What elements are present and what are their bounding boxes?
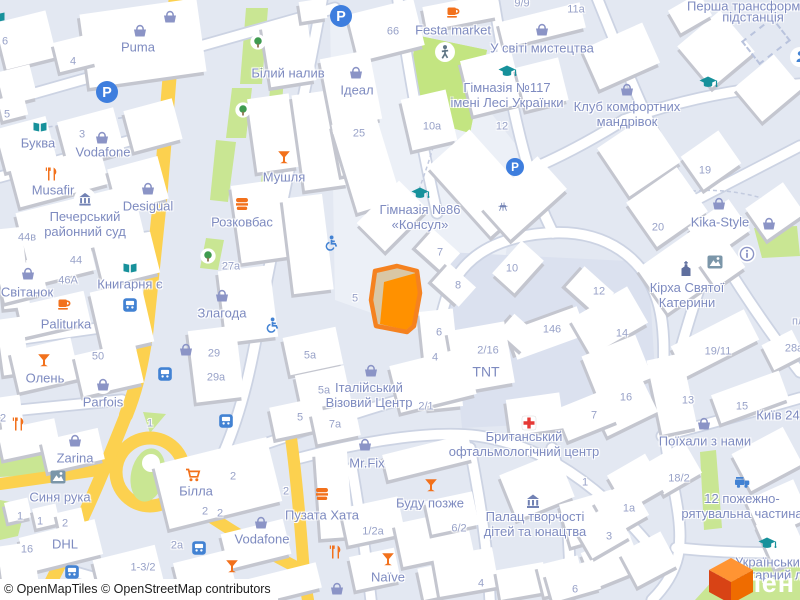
housenumber-label: 5а: [318, 384, 330, 399]
housenumber-label: пл: [792, 315, 800, 330]
fastfood-icon[interactable]: [312, 484, 332, 504]
poi-label: Синя рука: [29, 490, 90, 505]
poi-label: DHL: [52, 537, 78, 552]
housenumber-label: 2: [283, 485, 289, 500]
basket-icon[interactable]: [355, 435, 375, 455]
tree-icon: [235, 102, 252, 119]
parking-icon[interactable]: P: [330, 5, 352, 27]
housenumber-label: 16: [21, 543, 33, 558]
artwork-icon[interactable]: [705, 252, 725, 272]
poi-label: підстанція: [722, 10, 784, 25]
housenumber-label: 1/2a: [362, 525, 383, 540]
housenumber-label: 3: [79, 128, 85, 143]
poi-label: У світі мистецтва: [490, 41, 594, 56]
basket-icon[interactable]: [617, 80, 637, 100]
housenumber-label: 5: [4, 108, 10, 123]
poi-label: Kika-Style: [691, 215, 750, 230]
maptiler-logo-icon[interactable]: [706, 556, 756, 600]
cocktail-icon[interactable]: [274, 147, 294, 167]
housenumber-label: 1a: [623, 502, 635, 517]
fire-icon[interactable]: [732, 471, 752, 491]
attribution-bar[interactable]: © OpenMapTiles © OpenStreetMap contribut…: [0, 579, 278, 600]
poi-label: Розковбас: [211, 215, 273, 230]
poi-label: Ідеал: [340, 83, 373, 98]
basket-icon[interactable]: [212, 286, 232, 306]
poi-label: Злагода: [198, 306, 247, 321]
housenumber-label: 6/2: [451, 522, 466, 537]
housenumber-label: 16: [620, 391, 632, 406]
bank-icon[interactable]: [74, 188, 96, 210]
housenumber-label: 10a: [423, 120, 441, 135]
housenumber-label: 12: [593, 285, 605, 300]
basket-icon[interactable]: [93, 375, 113, 395]
housenumber-label: 2: [0, 412, 6, 427]
basket-icon[interactable]: [361, 361, 381, 381]
poi-label: Vodafone: [235, 532, 290, 547]
cocktail-icon[interactable]: [378, 549, 398, 569]
housenumber-label: 25: [353, 127, 365, 142]
housenumber-label: 6: [572, 583, 578, 598]
poi-label: Mr.Fix: [349, 456, 384, 471]
poi-label: Гімназія №117імені Лесі Українки: [450, 80, 563, 110]
poi-label: Білла: [179, 484, 213, 499]
poi-label: Кірха СвятоїКатерини: [650, 280, 725, 310]
poi-label: Палац творчостідітей та юнацтва: [484, 509, 587, 539]
cup-icon[interactable]: [54, 293, 74, 313]
housenumber-label: 2/16: [477, 344, 498, 359]
museum-icon[interactable]: [523, 491, 543, 511]
tree-icon: [250, 34, 267, 51]
housenumber-label: 7: [591, 409, 597, 424]
fastfood-icon[interactable]: [232, 194, 252, 214]
housenumber-label: 2/1: [418, 400, 433, 415]
poi-label: Поїхали з нами: [659, 434, 751, 449]
poi-label: Desigual: [123, 199, 174, 214]
wheelchair-icon[interactable]: [262, 315, 282, 335]
poi-label: 12 пожежно-рятувальна частина: [681, 491, 800, 521]
basket-icon[interactable]: [251, 513, 271, 533]
poi-label: Parfois: [83, 395, 123, 410]
housenumber-label: 13: [682, 394, 694, 409]
basket-icon[interactable]: [709, 194, 729, 214]
basket-icon[interactable]: [176, 340, 196, 360]
gradcap-icon[interactable]: [410, 183, 430, 203]
gradcap-icon[interactable]: [698, 72, 718, 92]
church-icon[interactable]: [676, 260, 696, 280]
housenumber-label: 7а: [329, 418, 341, 433]
bus-icon[interactable]: [191, 540, 208, 557]
housenumber-label: 19/11: [705, 345, 732, 360]
bus-icon[interactable]: [122, 297, 139, 314]
poi-label: Буква: [21, 136, 55, 151]
cup-icon[interactable]: [443, 1, 463, 21]
housenumber-label: 27а: [222, 260, 240, 275]
restaurant-icon[interactable]: [42, 164, 62, 184]
poi-label: Білий налив: [251, 66, 324, 81]
artwork-icon[interactable]: [48, 467, 68, 487]
housenumber-label: 3: [606, 530, 612, 545]
housenumber-label: 44: [70, 254, 82, 269]
book-icon[interactable]: [120, 258, 140, 278]
cocktail-icon[interactable]: [34, 350, 54, 370]
map-canvas[interactable]: PumaБілий наливБукваVodafoneMusafirDesig…: [0, 0, 800, 600]
poi-label: Puma: [121, 40, 155, 55]
restaurant-icon[interactable]: [326, 542, 346, 562]
basket-icon[interactable]: [160, 7, 180, 27]
housenumber-label: 1: [582, 476, 588, 491]
restaurant-icon[interactable]: [9, 414, 29, 434]
basket-icon[interactable]: [138, 179, 158, 199]
poi-label: ІталійськийВізовий Центр: [326, 380, 413, 410]
housenumber-label: 8: [455, 279, 461, 294]
housenumber-label: 66: [387, 25, 399, 40]
housenumber-label: 19: [699, 164, 711, 179]
housenumber-label: 6: [2, 35, 8, 50]
walk-icon[interactable]: [435, 42, 456, 63]
housenumber-label: 29: [208, 347, 220, 362]
poi-label: TNT: [472, 365, 499, 380]
grill-icon: [496, 200, 511, 215]
parking-icon[interactable]: P: [96, 81, 118, 103]
poi-label: Musafir: [32, 183, 75, 198]
poi-label: Київ 24: [756, 408, 799, 423]
poi-label: Мушля: [263, 170, 306, 185]
housenumber-label: 7: [437, 246, 443, 261]
basket-icon[interactable]: [327, 579, 347, 599]
housenumber-label: 20: [652, 221, 664, 236]
poi-label: Naïve: [371, 570, 405, 585]
cross-icon[interactable]: [519, 413, 539, 433]
bus-icon[interactable]: [64, 564, 81, 581]
basket-icon[interactable]: [92, 128, 112, 148]
housenumber-label: 10: [506, 262, 518, 277]
housenumber-label: 4: [478, 577, 484, 592]
gradcap-icon[interactable]: [757, 533, 777, 553]
basket-icon[interactable]: [18, 264, 38, 284]
housenumber-label: 29а: [207, 371, 225, 386]
parking-icon[interactable]: P: [506, 158, 524, 176]
housenumber-label: 2: [230, 470, 236, 485]
basket-icon[interactable]: [759, 214, 779, 234]
housenumber-label: 18/2: [668, 472, 689, 487]
book-icon[interactable]: [0, 7, 8, 27]
housenumber-label: 4: [432, 351, 438, 366]
housenumber-label: 2: [202, 505, 208, 520]
housenumber-label: 146: [543, 323, 561, 338]
housenumber-label: 11a: [567, 3, 585, 18]
poi-label: Книгарня є: [97, 277, 162, 292]
poi-label: Гімназія №86«Консул»: [379, 202, 460, 232]
housenumber-label: 14: [616, 327, 628, 342]
person-icon[interactable]: [790, 47, 800, 67]
bus-icon[interactable]: [157, 366, 174, 383]
housenumber-label: 2a: [171, 539, 183, 554]
basket-icon[interactable]: [694, 414, 714, 434]
housenumber-label: 28а: [785, 342, 800, 357]
info-icon[interactable]: [737, 244, 757, 264]
poi-label: Світанок: [1, 285, 53, 300]
poi-label: Пузата Хата: [285, 508, 359, 523]
wheelchair-icon[interactable]: [321, 233, 341, 253]
housenumber-label: 44в: [18, 231, 36, 246]
basket-icon[interactable]: [65, 431, 85, 451]
housenumber-label: 5: [352, 292, 358, 307]
housenumber-label: 12: [496, 120, 508, 135]
basket-icon[interactable]: [130, 21, 150, 41]
cocktail-icon[interactable]: [421, 475, 441, 495]
housenumber-label: 46А: [58, 274, 78, 289]
housenumber-label: 2: [217, 507, 223, 522]
book-icon[interactable]: [30, 117, 50, 137]
housenumber-label: 1: [37, 515, 43, 530]
housenumber-label: 2: [62, 517, 68, 532]
poi-label: Paliturka: [41, 317, 92, 332]
poi-label: Zarina: [57, 451, 94, 466]
housenumber-label: 1: [147, 417, 153, 432]
poi-label: Festa market: [415, 23, 491, 38]
tree-icon: [200, 248, 217, 265]
svg-text:P: P: [511, 161, 519, 174]
poi-label: Британськийофтальмологічний центр: [449, 429, 600, 459]
housenumber-label: 5: [297, 411, 303, 426]
poi-label: Олень: [26, 371, 65, 386]
cocktail-icon[interactable]: [222, 556, 242, 576]
housenumber-label: 1-3/2: [130, 561, 155, 576]
poi-label: Клуб комфортнихмандрівок: [574, 99, 681, 129]
housenumber-label: 5а: [304, 349, 316, 364]
gradcap-icon[interactable]: [497, 61, 517, 81]
basket-icon[interactable]: [532, 20, 552, 40]
svg-text:P: P: [336, 9, 346, 25]
cart-icon[interactable]: [183, 465, 203, 485]
housenumber-label: 50: [92, 350, 104, 365]
basket-icon[interactable]: [346, 63, 366, 83]
bus-icon[interactable]: [218, 413, 235, 430]
housenumber-label: 9/9: [514, 0, 529, 12]
poi-label: Буду позже: [396, 496, 464, 511]
housenumber-label: 6: [436, 326, 442, 341]
svg-text:P: P: [102, 85, 112, 101]
poi-label: Печерськийрайонний суд: [44, 209, 126, 239]
housenumber-label: 4: [70, 55, 76, 70]
housenumber-label: 1: [17, 510, 23, 525]
housenumber-label: 15: [736, 400, 748, 415]
